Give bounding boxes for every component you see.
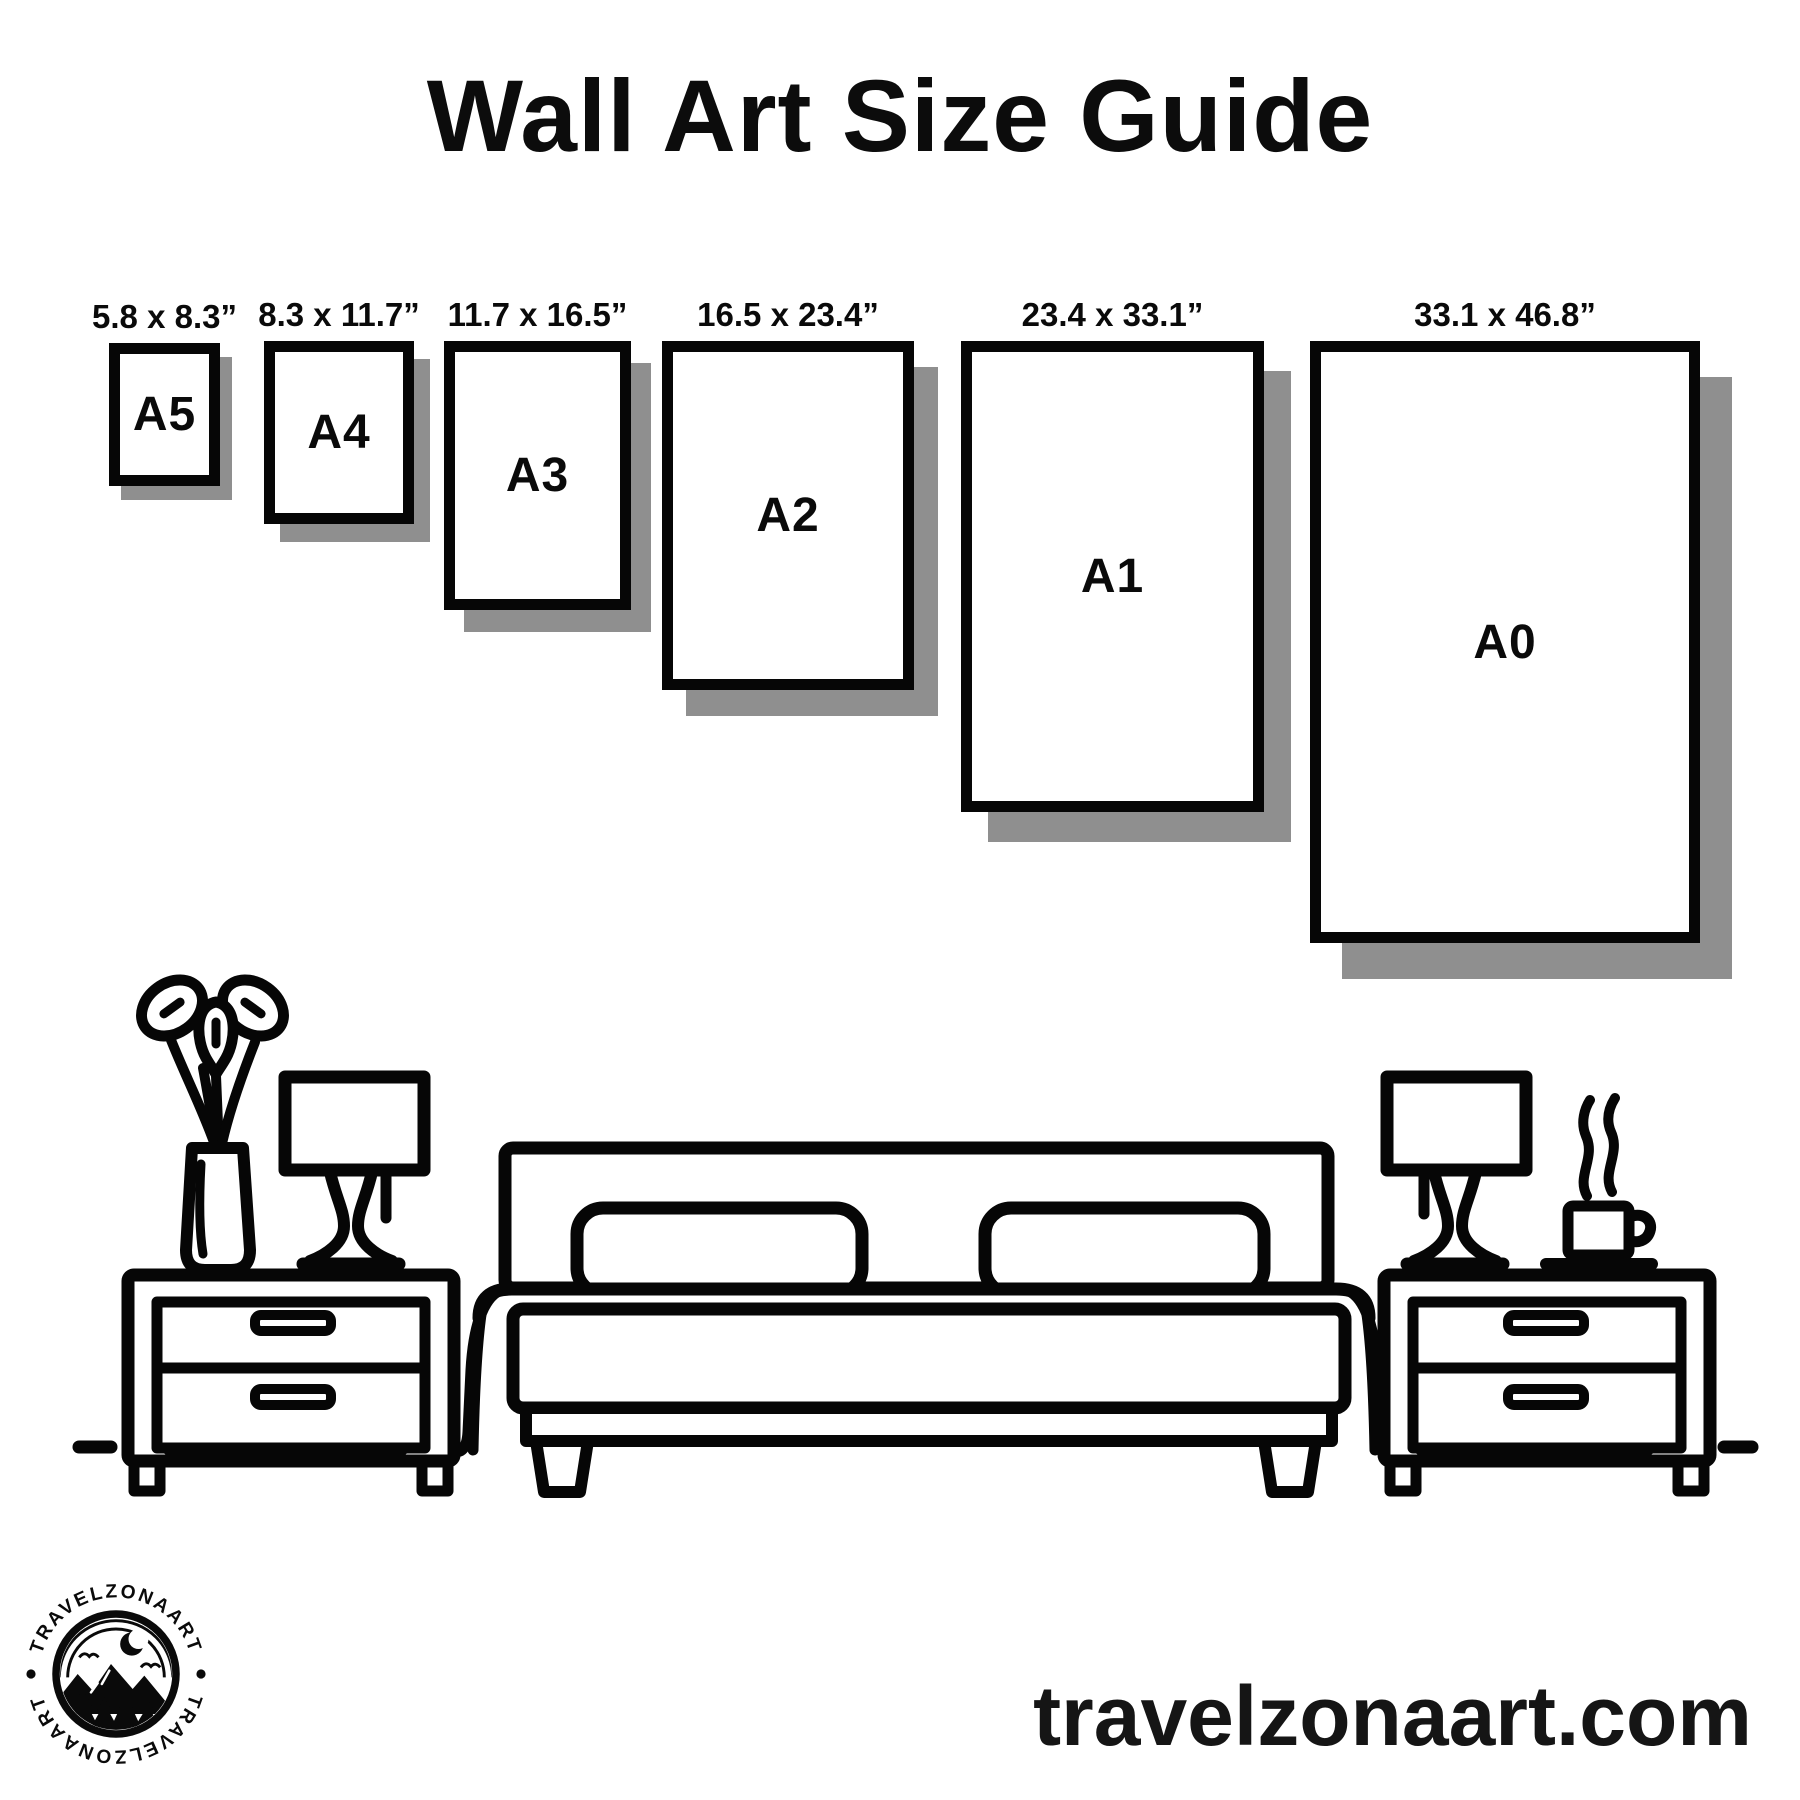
coffee-mug-icon [1546,1098,1652,1264]
table-lamp-left-icon [285,1077,424,1264]
drawer-handle [1508,1389,1584,1405]
steam-icon [1608,1098,1615,1192]
drawer-handle [255,1389,331,1405]
pillow-right [985,1208,1264,1294]
pillow-left [577,1208,862,1294]
size-label-a3: A3 [506,448,569,503]
website-url: travelzonaart.com [1033,1668,1752,1765]
bed-base [526,1408,1332,1441]
table-lamp-right-icon [1387,1077,1526,1264]
brand-logo: TRAVELZONAART TRAVELZONAART [16,1560,216,1788]
size-label-a0: A0 [1473,615,1536,670]
size-frame-a5: 5.8 x 8.3” A5 [109,343,220,486]
floor-line [79,1447,1752,1449]
duvet [513,1309,1345,1408]
dimension-label-a4: 8.3 x 11.7” [258,296,419,334]
drawer-handle [1508,1315,1584,1331]
bird-icon [79,1654,98,1658]
size-label-a4: A4 [307,405,370,460]
bed-icon [450,1148,1398,1492]
logo-text-top: TRAVELZONAART [26,1581,205,1656]
dimension-label-a1: 23.4 x 33.1” [1022,296,1204,334]
size-label-a2: A2 [756,488,819,543]
size-frame-a0: 33.1 x 46.8” A0 [1310,341,1700,943]
size-label-a5: A5 [133,387,196,442]
drawer-handle [255,1315,331,1331]
dimension-label-a3: 11.7 x 16.5” [448,296,628,334]
dimension-label-a0: 33.1 x 46.8” [1414,296,1596,334]
bird-icon [141,1664,160,1668]
plant-icon [131,968,295,1270]
steam-icon [1583,1100,1590,1196]
bedroom-illustration [0,900,1800,1500]
badge-dot [26,1669,35,1678]
size-frame-a1: 23.4 x 33.1” A1 [961,341,1264,812]
size-frame-a3: 11.7 x 16.5” A3 [444,341,631,610]
nightstand-left-icon [128,1275,454,1491]
size-frame-a4: 8.3 x 11.7” A4 [264,341,414,524]
size-frame-a2: 16.5 x 23.4” A2 [662,341,914,690]
dimension-label-a2: 16.5 x 23.4” [697,296,879,334]
bed-leg-right [1264,1441,1316,1492]
badge-dot [196,1669,205,1678]
bed-leg-left [536,1441,588,1492]
dimension-label-a5: 5.8 x 8.3” [92,298,237,336]
size-label-a1: A1 [1081,549,1144,604]
nightstand-right-icon [1384,1275,1710,1491]
page-title: Wall Art Size Guide [0,58,1800,175]
